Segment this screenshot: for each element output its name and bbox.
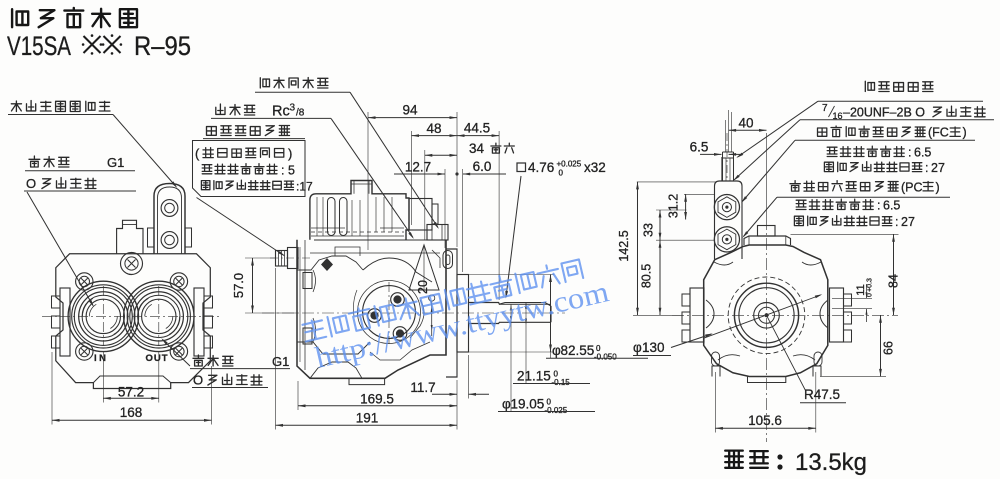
svg-text:27: 27 [931, 161, 945, 175]
svg-text:40: 40 [738, 116, 753, 131]
svg-text:): ) [963, 126, 967, 140]
svg-text:(PC: (PC [901, 181, 923, 195]
svg-text:20: 20 [416, 280, 430, 294]
svg-text:6.5: 6.5 [690, 140, 709, 155]
svg-text:G1: G1 [272, 354, 289, 369]
svg-text:6.5: 6.5 [914, 146, 931, 160]
svg-text::: : [877, 199, 880, 213]
svg-text:6.0: 6.0 [473, 159, 492, 174]
svg-text:–20UNF–2B O: –20UNF–2B O [843, 106, 925, 120]
svg-text:0: 0 [559, 169, 564, 178]
svg-text:Rc: Rc [272, 104, 290, 120]
svg-text:12.7: 12.7 [405, 159, 431, 174]
svg-text:φ: φ [633, 340, 642, 355]
svg-text:0: 0 [867, 293, 874, 297]
svg-text:+0.025: +0.025 [557, 160, 582, 169]
svg-text:x32: x32 [584, 160, 606, 175]
svg-text::17: :17 [296, 180, 313, 194]
svg-text:-0.050: -0.050 [594, 353, 617, 362]
svg-text:OUT: OUT [146, 353, 169, 364]
svg-text:(: ( [195, 146, 200, 161]
svg-text:-0.025: -0.025 [545, 406, 568, 415]
svg-text:44.5: 44.5 [464, 121, 490, 136]
svg-text:7: 7 [822, 103, 828, 114]
svg-text::: : [925, 161, 928, 175]
svg-text:R47.5: R47.5 [804, 387, 840, 402]
svg-text:142.5: 142.5 [617, 230, 631, 261]
svg-text:48: 48 [426, 121, 441, 136]
svg-text:11: 11 [855, 284, 867, 295]
svg-text:34: 34 [469, 141, 485, 156]
svg-text:57.0: 57.0 [231, 273, 246, 298]
svg-text:R–95: R–95 [134, 31, 191, 61]
svg-text:80.5: 80.5 [640, 264, 654, 288]
svg-text:13.5kg: 13.5kg [795, 449, 867, 476]
svg-text:O: O [193, 373, 203, 388]
svg-text:130: 130 [642, 340, 665, 355]
svg-text:19.05: 19.05 [511, 397, 545, 412]
svg-text::: : [895, 215, 898, 229]
svg-text:31.2: 31.2 [667, 194, 681, 218]
svg-text:/8: /8 [296, 108, 305, 119]
svg-text:): ) [288, 146, 292, 161]
svg-text:-0.15: -0.15 [552, 378, 571, 387]
svg-text:IN: IN [94, 353, 109, 364]
svg-text:4.76: 4.76 [528, 160, 554, 175]
svg-text:6.5: 6.5 [883, 199, 900, 213]
svg-text:21.15: 21.15 [517, 369, 551, 384]
svg-text:27: 27 [901, 215, 915, 229]
svg-text:82.55: 82.55 [561, 343, 595, 358]
svg-text:3: 3 [290, 103, 296, 114]
svg-text:191: 191 [356, 410, 379, 425]
svg-text:94: 94 [402, 103, 418, 118]
svg-text:(FC: (FC [928, 126, 949, 140]
svg-text:): ) [936, 181, 940, 195]
svg-text:168: 168 [120, 405, 143, 420]
svg-text:O: O [26, 176, 36, 191]
svg-text:G1: G1 [107, 155, 124, 170]
svg-text:169.5: 169.5 [360, 391, 394, 406]
svg-text:84: 84 [887, 274, 901, 288]
svg-text:+0.3: +0.3 [867, 278, 874, 292]
svg-text:105.6: 105.6 [748, 413, 782, 428]
svg-text:66: 66 [882, 341, 896, 355]
svg-text:57.2: 57.2 [118, 385, 144, 400]
svg-text:11.7: 11.7 [410, 380, 435, 395]
svg-text:33: 33 [642, 223, 656, 237]
svg-text:V15SA: V15SA [7, 31, 71, 61]
svg-text:: 5: : 5 [281, 164, 295, 178]
svg-text::: : [908, 146, 911, 160]
